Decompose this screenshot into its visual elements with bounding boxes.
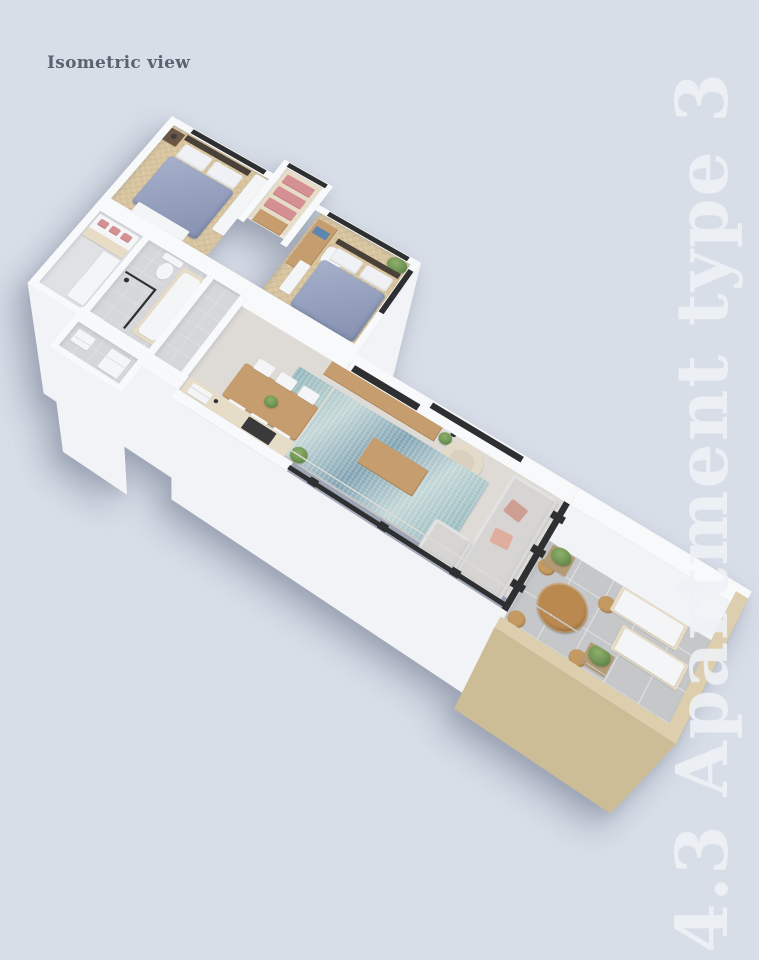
apartment-type-title: 4.3 Apartment type 3 bbox=[660, 71, 744, 953]
floorplan-scene bbox=[0, 0, 759, 960]
brochure-page: Isometric view bbox=[0, 0, 759, 960]
apartment-isometric-plan bbox=[0, 116, 759, 797]
